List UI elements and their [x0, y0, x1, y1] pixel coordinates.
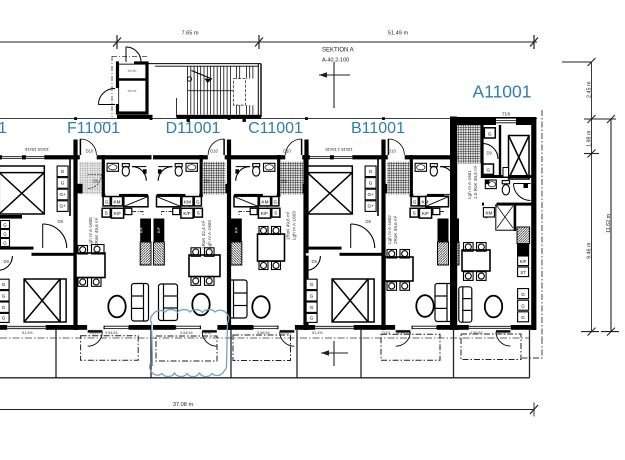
svg-text:Lgh nr A-1602: Lgh nr A-1602	[387, 215, 392, 244]
svg-text:Lgh nr A-1601: Lgh nr A-1601	[467, 170, 472, 199]
svg-text:5(10): 5(10)	[497, 331, 507, 335]
svg-text:F11001: F11001	[67, 120, 120, 137]
svg-text:KM: KM	[262, 200, 269, 205]
svg-text:5/10: 5/10	[204, 331, 211, 335]
svg-text:1.5 RoK 39,8 m²: 1.5 RoK 39,8 m²	[473, 165, 478, 199]
svg-text:S: S	[413, 211, 416, 216]
svg-text:51.4%: 51.4%	[22, 331, 33, 335]
svg-text:2RoK 49,6 m²: 2RoK 49,6 m²	[393, 215, 398, 244]
svg-text:4.56/16: 4.56/16	[470, 331, 483, 335]
svg-text:10x15 J 10x15: 10x15 J 10x15	[325, 147, 353, 152]
svg-text:3.56/16: 3.56/16	[257, 331, 270, 335]
svg-text:11.62 m: 11.62 m	[606, 213, 612, 233]
svg-text:C11001: C11001	[248, 120, 303, 137]
svg-text:S: S	[274, 211, 277, 216]
svg-text:1: 1	[0, 120, 7, 137]
svg-text:S: S	[197, 211, 200, 216]
svg-text:D/10: D/10	[382, 331, 390, 335]
svg-text:K/F: K/F	[520, 259, 527, 264]
svg-text:KM: KM	[485, 211, 492, 216]
svg-text:9.46 m: 9.46 m	[587, 242, 593, 259]
svg-text:Lgh nr A-1605: Lgh nr A-1605	[88, 217, 93, 246]
svg-text:51.4%: 51.4%	[312, 331, 323, 335]
svg-text:D9: D9	[487, 151, 493, 156]
svg-text:7.65 m: 7.65 m	[181, 31, 198, 37]
svg-text:A-40.2-100: A-40.2-100	[322, 58, 349, 64]
svg-text:K/F: K/F	[114, 211, 121, 216]
svg-text:förråd: förråd	[128, 69, 137, 73]
svg-text:ST: ST	[520, 270, 526, 275]
svg-text:KM: KM	[114, 200, 121, 205]
svg-text:KM: KM	[422, 200, 429, 205]
svg-text:1RoK 32,4 m²: 1RoK 32,4 m²	[201, 220, 206, 249]
svg-text:4.54/16: 4.54/16	[180, 331, 193, 335]
svg-text:D10: D10	[210, 149, 218, 154]
svg-text:K/F: K/F	[140, 226, 144, 233]
svg-text:D(10): D(10)	[90, 331, 100, 335]
svg-text:D10: D10	[283, 149, 291, 154]
svg-text:6/11: 6/11	[501, 111, 510, 116]
svg-text:K/F: K/F	[157, 226, 161, 233]
svg-text:51.49 m: 51.49 m	[388, 31, 409, 37]
svg-text:1RoK 49,6 m²: 1RoK 49,6 m²	[286, 211, 291, 240]
svg-text:4.54/16: 4.54/16	[397, 331, 410, 335]
svg-text:B11001: B11001	[351, 120, 405, 137]
svg-text:G: G	[413, 199, 417, 204]
svg-text:K/F: K/F	[422, 211, 429, 216]
svg-text:G: G	[521, 315, 525, 320]
svg-text:teknik: teknik	[128, 89, 137, 93]
svg-text:G: G	[521, 292, 525, 297]
svg-text:G: G	[3, 241, 7, 246]
svg-text:D9: D9	[204, 179, 210, 184]
svg-text:S: S	[105, 211, 108, 216]
svg-text:G: G	[486, 168, 490, 174]
svg-text:G: G	[274, 199, 278, 204]
svg-text:D10: D10	[388, 149, 396, 154]
svg-text:A11001: A11001	[472, 82, 531, 102]
svg-text:K/F: K/F	[183, 211, 190, 216]
svg-text:D(10): D(10)	[281, 331, 291, 335]
svg-text:D9: D9	[93, 179, 99, 184]
svg-text:G: G	[3, 223, 7, 228]
svg-text:2.45 m: 2.45 m	[587, 81, 593, 98]
svg-text:K/F: K/F	[261, 211, 268, 216]
svg-text:G: G	[105, 199, 109, 204]
svg-text:2RoK 49,6 m²: 2RoK 49,6 m²	[94, 217, 99, 246]
svg-text:G: G	[488, 132, 492, 138]
svg-text:37.08 m: 37.08 m	[173, 402, 194, 408]
svg-text:G: G	[3, 232, 7, 237]
svg-text:G: G	[521, 304, 525, 309]
svg-text:KM: KM	[184, 200, 191, 205]
svg-text:K/F: K/F	[234, 226, 238, 233]
svg-text:D9: D9	[282, 179, 288, 184]
svg-text:10x15 10x15: 10x15 10x15	[24, 147, 49, 152]
svg-text:D10: D10	[86, 149, 94, 154]
svg-text:Lgh nr A-1604: Lgh nr A-1604	[207, 220, 212, 249]
svg-text:D11001: D11001	[166, 120, 221, 137]
svg-text:Lgh nr A-1603: Lgh nr A-1603	[292, 211, 297, 240]
svg-text:3.54/16: 3.54/16	[105, 331, 118, 335]
svg-text:G: G	[196, 199, 200, 204]
svg-text:1.98 m: 1.98 m	[587, 130, 593, 147]
svg-text:SEKTION A: SEKTION A	[322, 48, 354, 54]
